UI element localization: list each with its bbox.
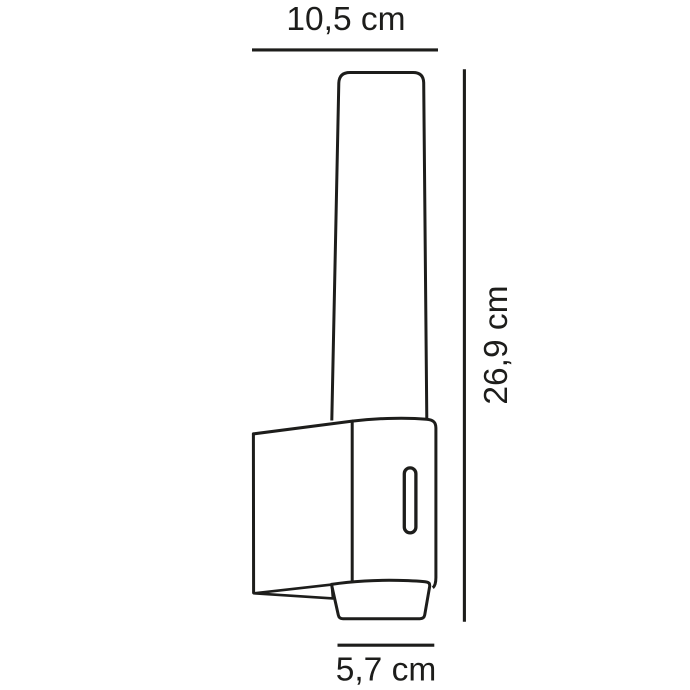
- svg-text:26,9 cm: 26,9 cm: [478, 285, 515, 404]
- svg-text:5,7 cm: 5,7 cm: [336, 652, 437, 689]
- svg-text:10,5 cm: 10,5 cm: [286, 1, 405, 38]
